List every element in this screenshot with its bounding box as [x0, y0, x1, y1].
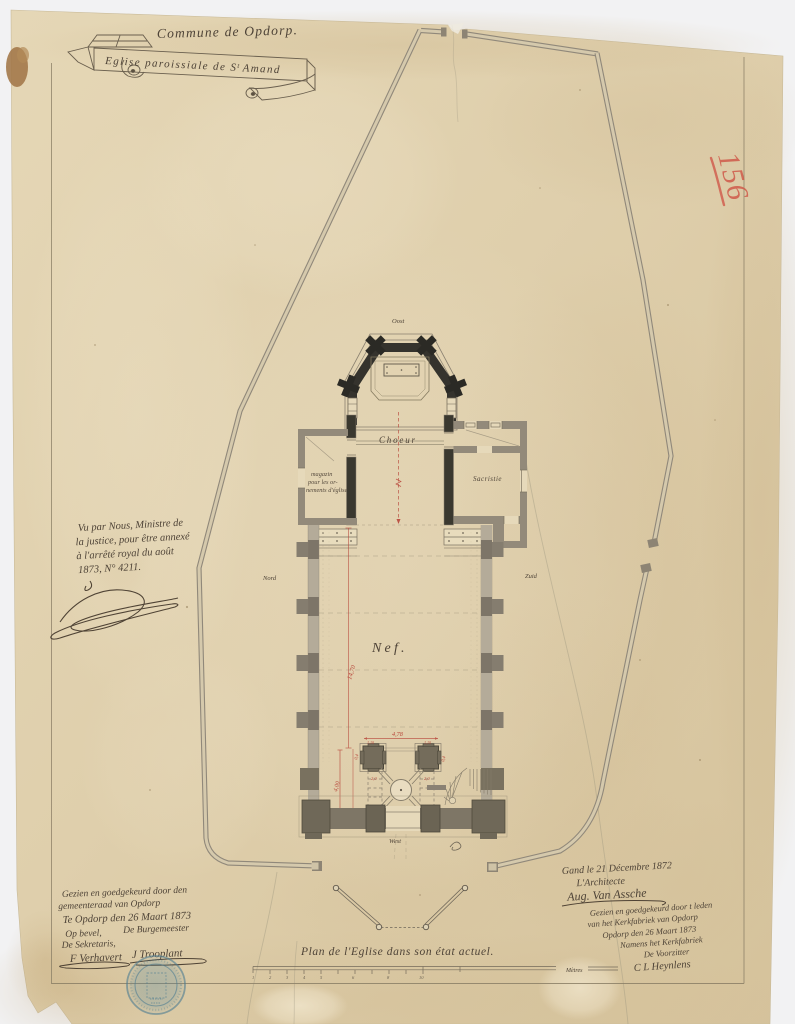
svg-text:Zuid: Zuid: [525, 573, 538, 580]
svg-text:F Verhavert: F Verhavert: [69, 951, 123, 965]
svg-text:nements d'église: nements d'église: [306, 487, 348, 494]
svg-text:Plan de l'Eglise dans son état: Plan de l'Eglise dans son état actuel.: [300, 946, 494, 958]
svg-text:magazin: magazin: [311, 471, 332, 478]
svg-text:1: 1: [252, 975, 254, 980]
svg-text:Op bevel,: Op bevel,: [65, 929, 102, 940]
svg-text:10: 10: [419, 975, 424, 980]
svg-text:Oost: Oost: [392, 318, 404, 325]
svg-text:West: West: [389, 838, 401, 845]
svg-text:Mètres: Mètres: [565, 968, 583, 974]
svg-text:pour les or-: pour les or-: [307, 479, 338, 486]
svg-text:Sacristie: Sacristie: [473, 475, 502, 483]
svg-text:De Sekretaris,: De Sekretaris,: [61, 939, 116, 951]
svg-text:Nord: Nord: [262, 575, 277, 582]
svg-text:Choeur: Choeur: [379, 435, 417, 445]
svg-text:Nef.: Nef.: [371, 641, 408, 656]
svg-text:4,78: 4,78: [392, 731, 404, 738]
